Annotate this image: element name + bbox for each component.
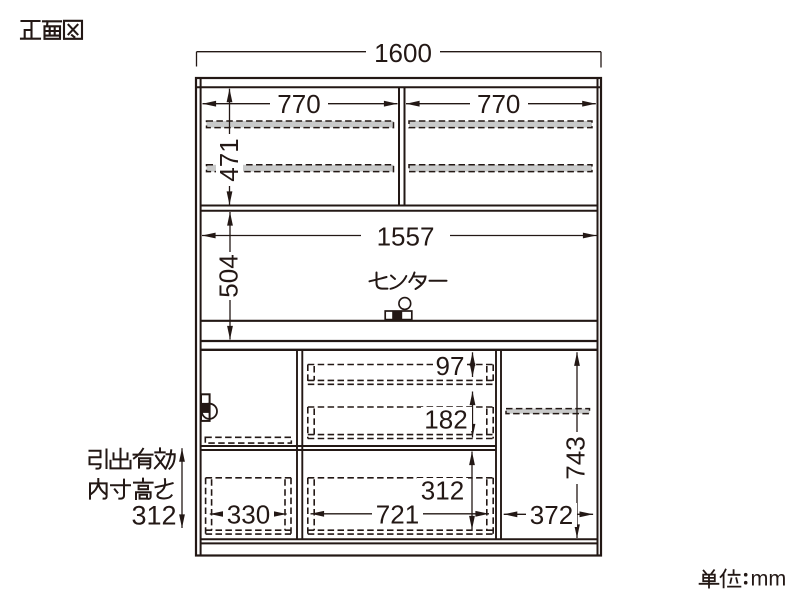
- svg-text:97: 97: [436, 351, 465, 381]
- svg-text:330: 330: [227, 499, 270, 529]
- svg-text:770: 770: [477, 89, 520, 119]
- svg-text:770: 770: [277, 89, 320, 119]
- svg-text:182: 182: [424, 404, 467, 434]
- svg-text:mm: mm: [751, 567, 787, 591]
- svg-text:743: 743: [561, 436, 591, 479]
- svg-text:372: 372: [530, 500, 573, 530]
- svg-text:721: 721: [376, 500, 419, 530]
- svg-text:1557: 1557: [377, 222, 435, 252]
- svg-text:312: 312: [131, 501, 176, 531]
- svg-text:312: 312: [421, 475, 464, 505]
- svg-text:1600: 1600: [374, 38, 432, 68]
- svg-text:504: 504: [214, 254, 244, 297]
- svg-text:471: 471: [214, 138, 244, 181]
